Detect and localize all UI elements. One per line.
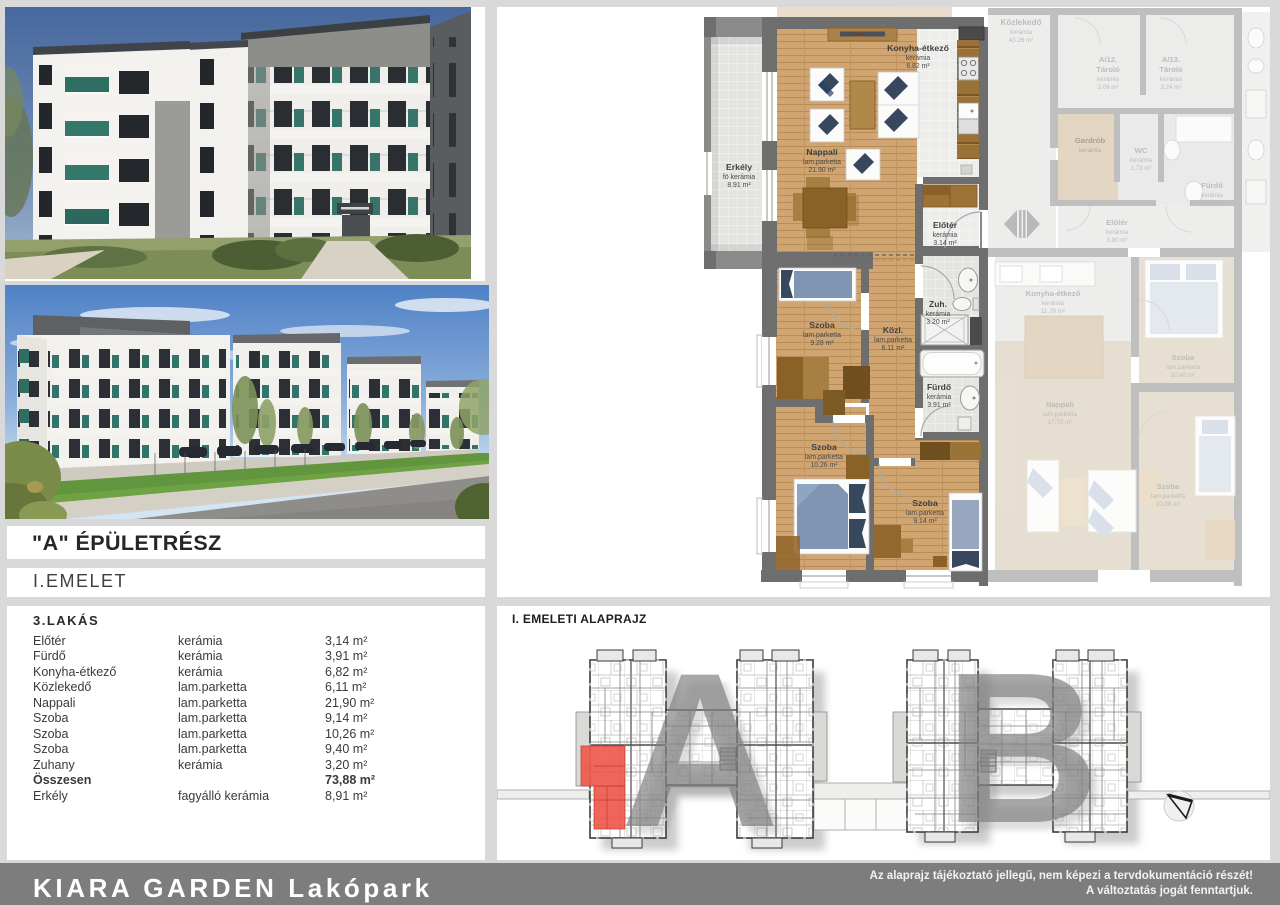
svg-text:fö kerámia: fö kerámia <box>723 174 755 181</box>
svg-text:kerámia: kerámia <box>1201 192 1224 199</box>
svg-text:9.14 m²: 9.14 m² <box>913 518 937 525</box>
svg-text:A/12.: A/12. <box>1099 55 1117 64</box>
svg-text:kerámia: kerámia <box>906 55 931 62</box>
svg-text:10.26 m²: 10.26 m² <box>810 462 838 469</box>
svg-text:lam.parketta: lam.parketta <box>906 510 944 517</box>
svg-text:Tároló: Tároló <box>1159 65 1183 74</box>
svg-text:Tároló: Tároló <box>1096 65 1120 74</box>
svg-text:kerámia: kerámia <box>1079 147 1102 154</box>
svg-text:3.09 m²: 3.09 m² <box>1098 84 1119 91</box>
svg-text:Zuh.: Zuh. <box>929 299 947 309</box>
svg-text:B: B <box>944 627 1099 860</box>
svg-text:3.80 m²: 3.80 m² <box>1107 237 1128 244</box>
svg-text:3.14 m²: 3.14 m² <box>933 240 957 247</box>
svg-text:Nappali: Nappali <box>806 147 837 157</box>
svg-text:Fürdő: Fürdő <box>927 382 951 392</box>
svg-text:kerámia: kerámia <box>933 232 958 239</box>
svg-text:kerámia: kerámia <box>926 311 951 318</box>
svg-text:lam.parketta: lam.parketta <box>874 337 912 344</box>
svg-text:9.28 m²: 9.28 m² <box>810 340 834 347</box>
svg-text:Szoba: Szoba <box>811 442 837 452</box>
svg-text:kerámia: kerámia <box>1042 300 1065 307</box>
svg-text:kerámia: kerámia <box>1097 76 1120 83</box>
svg-text:Konyha-étkező: Konyha-étkező <box>887 43 949 53</box>
svg-text:A/13.: A/13. <box>1162 55 1180 64</box>
svg-text:Fürdő: Fürdő <box>1201 181 1223 190</box>
svg-text:kerámia: kerámia <box>1130 157 1153 164</box>
svg-text:Erkély: Erkély <box>726 162 752 172</box>
svg-text:6.11 m²: 6.11 m² <box>882 345 906 352</box>
svg-text:Szoba: Szoba <box>1172 353 1195 362</box>
svg-text:Szoba: Szoba <box>809 320 835 330</box>
svg-text:10.08 m²: 10.08 m² <box>1156 501 1180 508</box>
svg-text:11.78 m²: 11.78 m² <box>1041 308 1065 315</box>
svg-text:kerámia: kerámia <box>927 394 952 401</box>
svg-text:lam.parketta: lam.parketta <box>1166 364 1201 371</box>
svg-text:kerámia: kerámia <box>1106 229 1129 236</box>
svg-text:Szoba: Szoba <box>1157 482 1180 491</box>
svg-text:8.91 m²: 8.91 m² <box>727 182 751 189</box>
svg-text:Közl.: Közl. <box>883 325 903 335</box>
svg-text:3.20 m²: 3.20 m² <box>926 319 950 326</box>
svg-text:17.70 m²: 17.70 m² <box>1048 419 1072 426</box>
svg-text:3.91 m²: 3.91 m² <box>927 402 951 409</box>
svg-text:Szoba: Szoba <box>912 498 938 508</box>
svg-text:6.82 m²: 6.82 m² <box>906 63 930 70</box>
svg-text:Nappali: Nappali <box>1046 400 1074 409</box>
svg-text:Közlekedő: Közlekedő <box>1001 18 1042 27</box>
svg-text:3.24 m²: 3.24 m² <box>1161 84 1182 91</box>
svg-text:21.90 m²: 21.90 m² <box>808 167 836 174</box>
svg-text:lam.parketta: lam.parketta <box>803 332 841 339</box>
svg-text:43.26 m²: 43.26 m² <box>1009 37 1033 44</box>
svg-text:A: A <box>621 627 780 860</box>
svg-text:Konyha-étkező: Konyha-étkező <box>1026 289 1081 298</box>
svg-text:10.40 m²: 10.40 m² <box>1171 372 1195 379</box>
svg-text:WC: WC <box>1135 146 1148 155</box>
svg-text:lam.parketta: lam.parketta <box>1151 493 1186 500</box>
svg-text:lam.parketta: lam.parketta <box>1043 411 1078 418</box>
svg-text:Előtér: Előtér <box>1106 218 1128 227</box>
svg-text:kerámia: kerámia <box>1010 29 1033 36</box>
svg-text:1.73 m²: 1.73 m² <box>1131 165 1152 172</box>
svg-text:lam.parketta: lam.parketta <box>803 159 841 166</box>
svg-text:Gardrób: Gardrób <box>1075 136 1106 145</box>
svg-text:6.14 m²: 6.14 m² <box>1202 200 1223 207</box>
svg-text:Előtér: Előtér <box>933 220 958 230</box>
svg-text:kerámia: kerámia <box>1160 76 1183 83</box>
svg-text:lam.parketta: lam.parketta <box>805 454 843 461</box>
